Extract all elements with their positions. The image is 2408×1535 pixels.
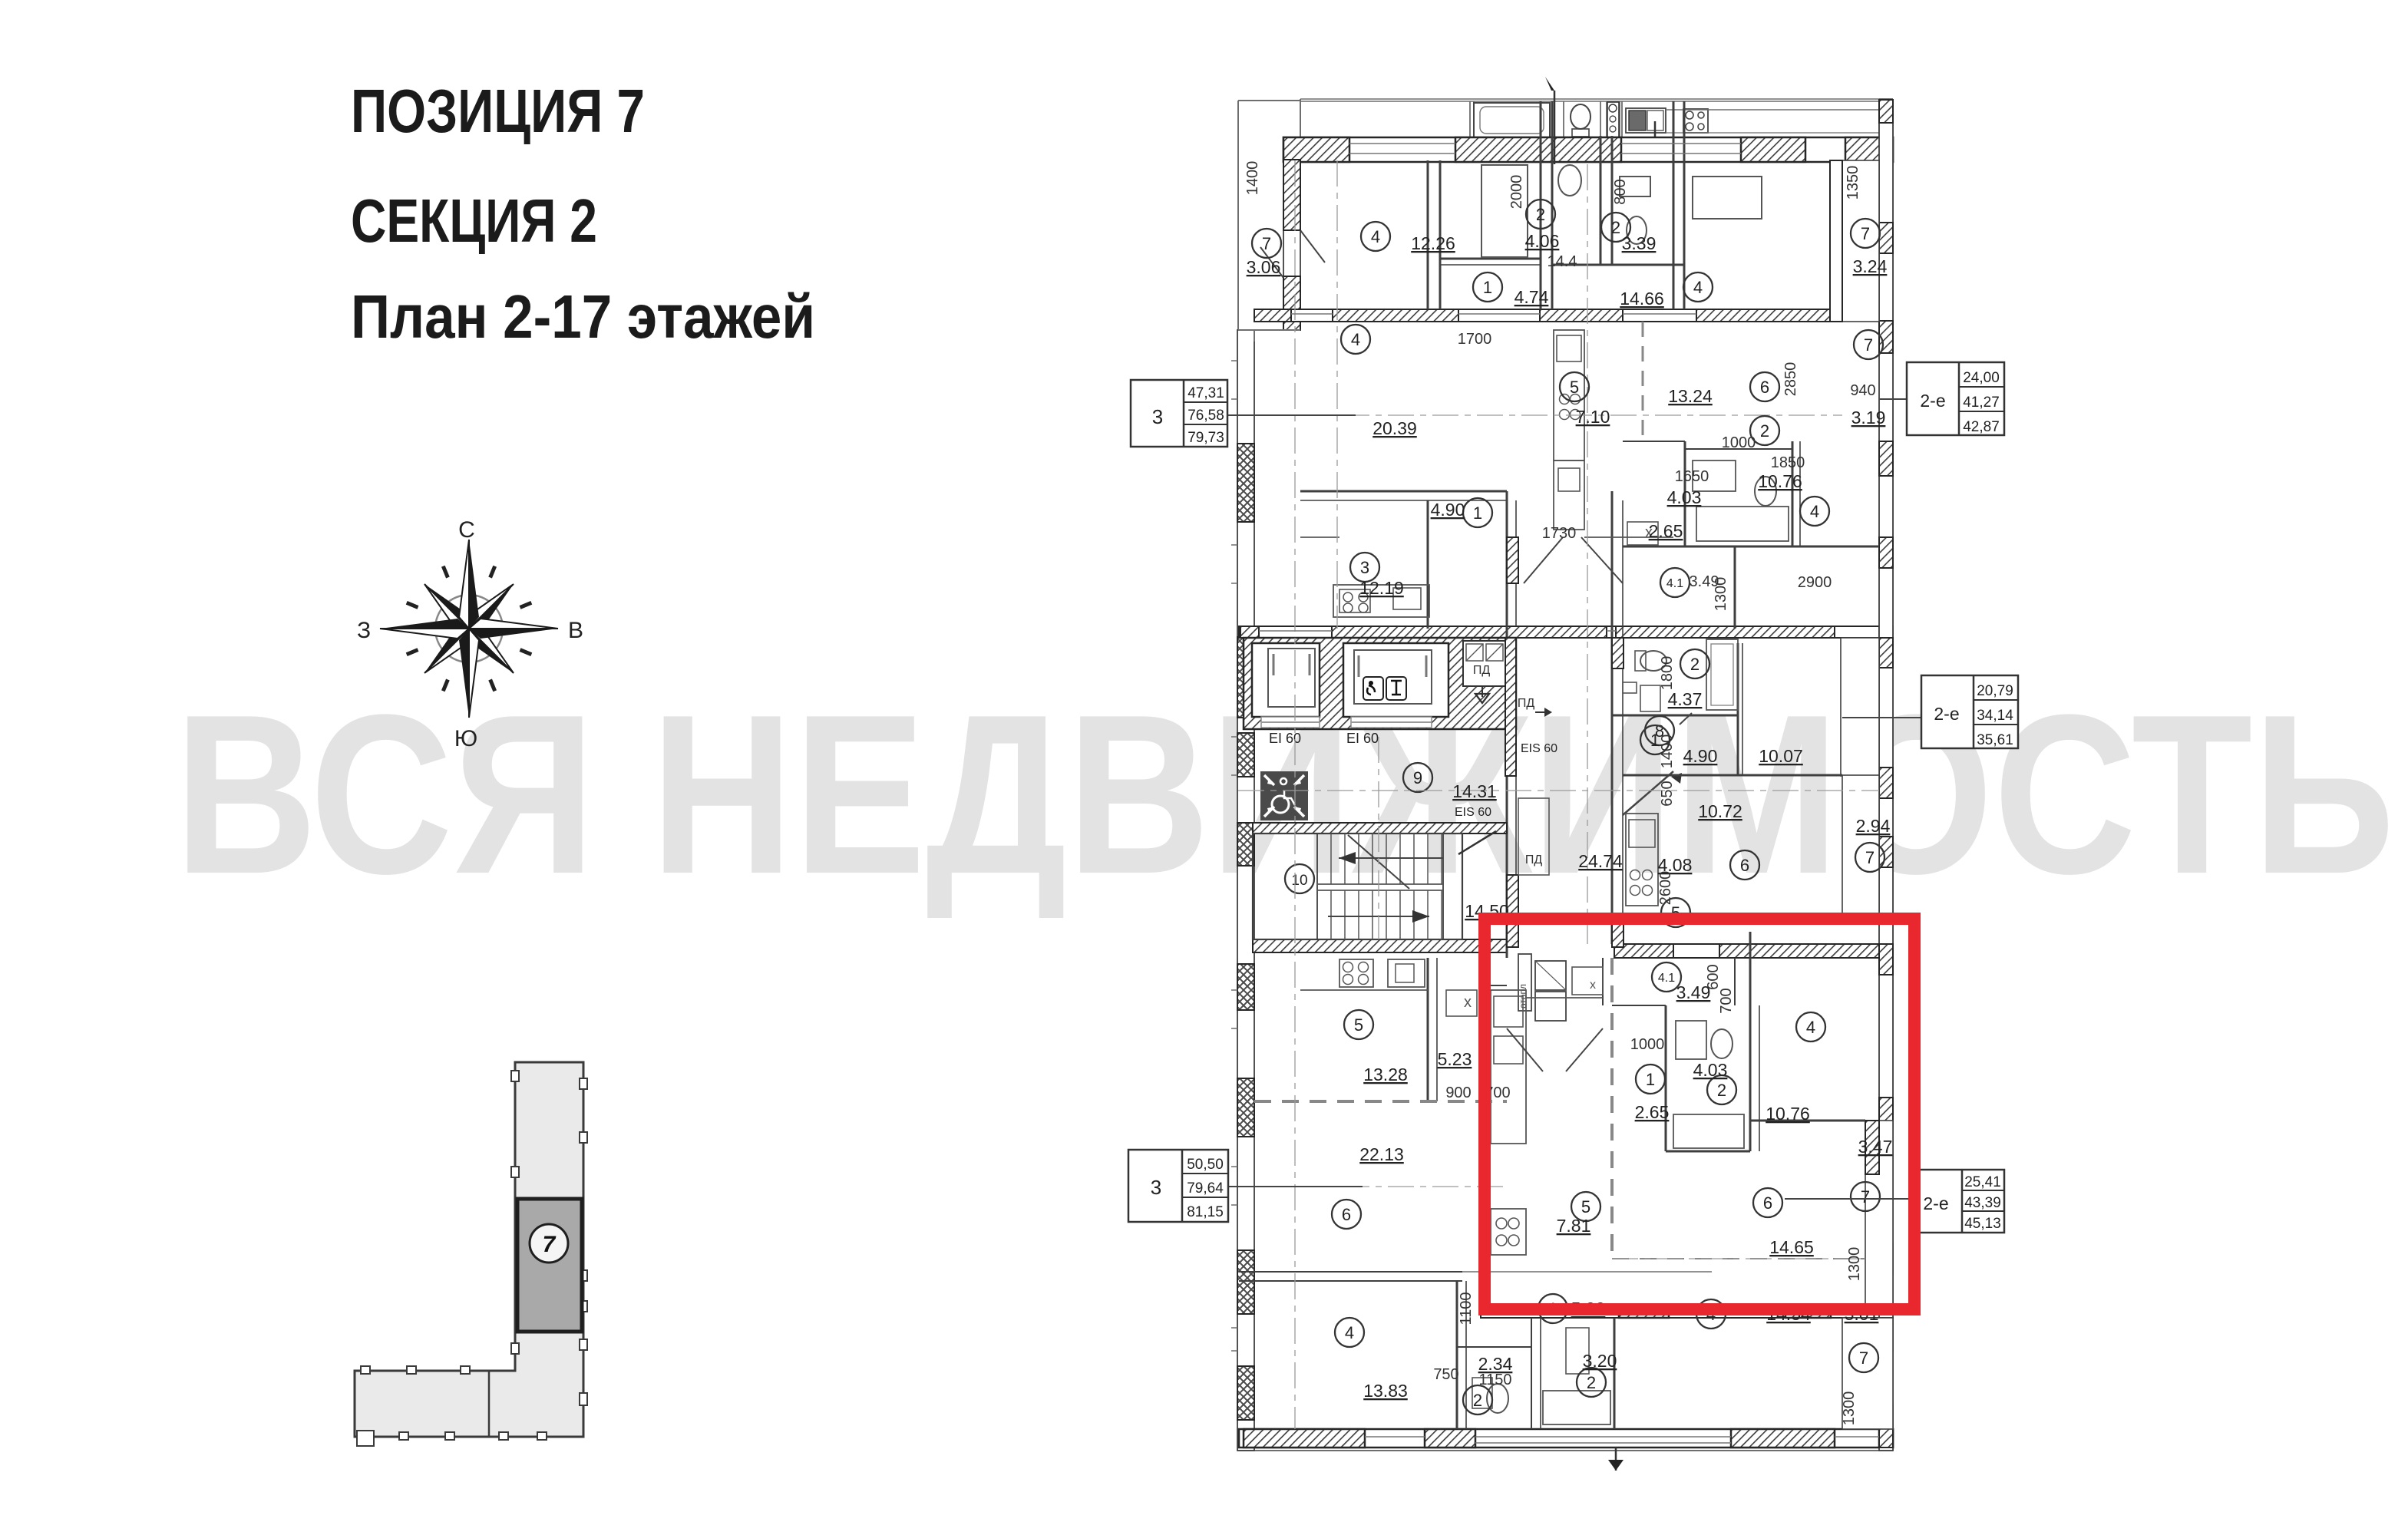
svg-text:2: 2 — [1587, 1373, 1596, 1392]
svg-text:2850: 2850 — [1782, 362, 1799, 397]
svg-text:1300: 1300 — [1713, 577, 1729, 612]
svg-text:2: 2 — [1690, 655, 1699, 674]
svg-text:7: 7 — [1861, 224, 1870, 243]
svg-text:14.31: 14.31 — [1452, 781, 1497, 801]
svg-text:4: 4 — [1345, 1323, 1354, 1342]
svg-text:4.74: 4.74 — [1514, 287, 1549, 307]
svg-text:42,87: 42,87 — [1963, 419, 2000, 435]
svg-text:10.07: 10.07 — [1759, 746, 1803, 766]
svg-text:940: 940 — [1850, 382, 1875, 399]
svg-text:1300: 1300 — [1841, 1391, 1858, 1426]
svg-text:2.65: 2.65 — [1649, 521, 1683, 541]
svg-text:x: x — [1590, 979, 1596, 992]
svg-text:2000: 2000 — [1508, 175, 1525, 210]
svg-text:2-е: 2-е — [1920, 391, 1945, 411]
svg-text:1000: 1000 — [1630, 1036, 1665, 1053]
svg-text:3: 3 — [1152, 405, 1163, 428]
svg-text:1000: 1000 — [1722, 434, 1756, 451]
svg-text:4: 4 — [1693, 278, 1703, 297]
svg-text:79,64: 79,64 — [1187, 1180, 1224, 1197]
svg-text:1650: 1650 — [1675, 468, 1709, 485]
svg-text:1730: 1730 — [1542, 525, 1577, 542]
svg-text:2900: 2900 — [1798, 574, 1832, 591]
svg-text:1: 1 — [1646, 1070, 1655, 1089]
svg-text:10: 10 — [1291, 873, 1307, 889]
svg-text:1350: 1350 — [1845, 166, 1861, 200]
svg-text:3.39: 3.39 — [1622, 233, 1657, 253]
svg-text:20.39: 20.39 — [1372, 418, 1417, 438]
svg-text:1400: 1400 — [1244, 161, 1261, 196]
svg-text:3: 3 — [1360, 558, 1369, 577]
svg-text:2: 2 — [1473, 1391, 1482, 1410]
svg-text:В: В — [568, 618, 583, 643]
svg-text:4.90: 4.90 — [1683, 746, 1718, 766]
svg-text:24,00: 24,00 — [1963, 370, 2000, 386]
svg-text:4.1: 4.1 — [1666, 577, 1683, 590]
svg-text:ПД: ПД — [1518, 697, 1535, 710]
svg-text:1150: 1150 — [1478, 1372, 1511, 1388]
svg-text:EIS 60: EIS 60 — [1455, 806, 1491, 819]
svg-text:ПОЗИЦИЯ 7: ПОЗИЦИЯ 7 — [351, 77, 645, 145]
svg-text:3: 3 — [1151, 1176, 1161, 1199]
svg-text:З: З — [357, 618, 371, 643]
svg-text:41,27: 41,27 — [1963, 394, 2000, 411]
svg-text:35,61: 35,61 — [1977, 732, 2013, 748]
svg-text:5.23: 5.23 — [1438, 1049, 1472, 1069]
svg-text:10.76: 10.76 — [1766, 1104, 1810, 1124]
svg-text:4.06: 4.06 — [1525, 231, 1560, 251]
svg-text:EIS 60: EIS 60 — [1521, 742, 1557, 755]
svg-text:7.10: 7.10 — [1576, 407, 1610, 427]
svg-text:47,31: 47,31 — [1187, 385, 1224, 401]
svg-text:700: 700 — [1718, 988, 1735, 1013]
svg-text:1800: 1800 — [1659, 656, 1676, 691]
svg-text:45,13: 45,13 — [1964, 1216, 2001, 1232]
svg-text:СЕКЦИЯ 2: СЕКЦИЯ 2 — [351, 187, 597, 255]
svg-text:7.81: 7.81 — [1557, 1216, 1591, 1236]
svg-text:20,79: 20,79 — [1977, 683, 2013, 699]
svg-text:650: 650 — [1659, 781, 1676, 806]
svg-text:7: 7 — [1262, 234, 1271, 253]
svg-text:79,73: 79,73 — [1187, 430, 1224, 446]
svg-text:6: 6 — [1763, 1193, 1772, 1213]
svg-text:7: 7 — [1865, 848, 1875, 867]
svg-text:2: 2 — [1760, 421, 1769, 441]
svg-text:4.03: 4.03 — [1693, 1060, 1728, 1080]
svg-text:2600: 2600 — [1657, 871, 1674, 906]
svg-text:2-е: 2-е — [1923, 1193, 1948, 1213]
svg-text:13.83: 13.83 — [1363, 1381, 1408, 1401]
svg-text:3.19: 3.19 — [1851, 408, 1886, 427]
svg-text:14.65: 14.65 — [1769, 1237, 1814, 1257]
svg-text:3.24: 3.24 — [1853, 256, 1888, 276]
svg-text:1: 1 — [1473, 503, 1482, 523]
svg-text:EI 60: EI 60 — [1269, 731, 1301, 746]
svg-text:1: 1 — [1483, 278, 1492, 297]
svg-text:14.4: 14.4 — [1548, 253, 1577, 270]
svg-text:4: 4 — [1351, 330, 1360, 349]
svg-text:800: 800 — [1612, 179, 1629, 204]
svg-text:5: 5 — [1354, 1015, 1363, 1035]
svg-text:3.47: 3.47 — [1858, 1137, 1893, 1157]
svg-text:14.66: 14.66 — [1620, 289, 1664, 309]
svg-text:2.94: 2.94 — [1856, 816, 1891, 836]
svg-text:1300: 1300 — [1846, 1247, 1863, 1282]
svg-text:7: 7 — [543, 1232, 557, 1257]
svg-text:10.72: 10.72 — [1698, 801, 1742, 821]
svg-text:1100: 1100 — [1458, 1292, 1475, 1325]
svg-text:7: 7 — [1861, 1187, 1870, 1207]
svg-text:12.19: 12.19 — [1359, 578, 1404, 598]
svg-text:3.20: 3.20 — [1583, 1351, 1617, 1371]
svg-text:13.28: 13.28 — [1363, 1065, 1408, 1084]
svg-text:50,50: 50,50 — [1187, 1157, 1224, 1173]
svg-text:4.03: 4.03 — [1667, 487, 1702, 507]
svg-text:76,58: 76,58 — [1187, 408, 1224, 424]
svg-text:Ю: Ю — [454, 726, 477, 751]
svg-text:22.13: 22.13 — [1359, 1144, 1404, 1164]
svg-text:6: 6 — [1760, 378, 1769, 397]
svg-text:5: 5 — [1581, 1197, 1590, 1216]
svg-text:4.37: 4.37 — [1668, 689, 1703, 709]
svg-text:4.90: 4.90 — [1431, 500, 1465, 520]
svg-text:600: 600 — [1705, 964, 1722, 989]
svg-text:ПД: ПД — [1473, 664, 1491, 677]
svg-text:EI 60: EI 60 — [1346, 731, 1379, 746]
svg-text:2: 2 — [1717, 1081, 1726, 1100]
svg-text:4: 4 — [1371, 227, 1380, 246]
svg-text:900: 900 — [1445, 1084, 1471, 1101]
svg-text:2.65: 2.65 — [1635, 1102, 1670, 1122]
svg-text:6: 6 — [1740, 856, 1749, 875]
svg-text:43,39: 43,39 — [1964, 1195, 2001, 1211]
svg-text:3.06: 3.06 — [1247, 257, 1281, 277]
svg-text:4.1: 4.1 — [1658, 972, 1675, 985]
svg-text:x: x — [1464, 994, 1472, 1011]
svg-text:4: 4 — [1806, 1018, 1815, 1037]
svg-text:7: 7 — [1859, 1348, 1868, 1368]
svg-text:1400: 1400 — [1659, 734, 1676, 769]
svg-text:ПД: ПД — [1525, 853, 1543, 867]
svg-text:С: С — [458, 517, 475, 543]
svg-text:12.26: 12.26 — [1411, 233, 1455, 253]
svg-text:План 2-17 этажей: План 2-17 этажей — [351, 282, 815, 351]
svg-text:2: 2 — [1536, 205, 1545, 224]
svg-text:9: 9 — [1413, 768, 1422, 787]
svg-text:13.24: 13.24 — [1668, 386, 1713, 406]
svg-text:25,41: 25,41 — [1964, 1174, 2001, 1190]
svg-text:7: 7 — [1864, 335, 1873, 355]
svg-text:750: 750 — [1433, 1366, 1458, 1383]
svg-text:5: 5 — [1570, 378, 1579, 397]
svg-text:81,15: 81,15 — [1187, 1204, 1224, 1220]
svg-text:34,14: 34,14 — [1977, 708, 2013, 724]
svg-text:4: 4 — [1810, 502, 1819, 521]
svg-text:2: 2 — [1611, 218, 1620, 237]
svg-text:10.76: 10.76 — [1758, 471, 1802, 491]
svg-text:2-е: 2-е — [1934, 704, 1959, 724]
svg-text:6: 6 — [1342, 1205, 1351, 1224]
svg-text:1850: 1850 — [1771, 454, 1805, 471]
svg-text:1700: 1700 — [1458, 331, 1492, 348]
svg-text:24.74: 24.74 — [1578, 851, 1623, 871]
